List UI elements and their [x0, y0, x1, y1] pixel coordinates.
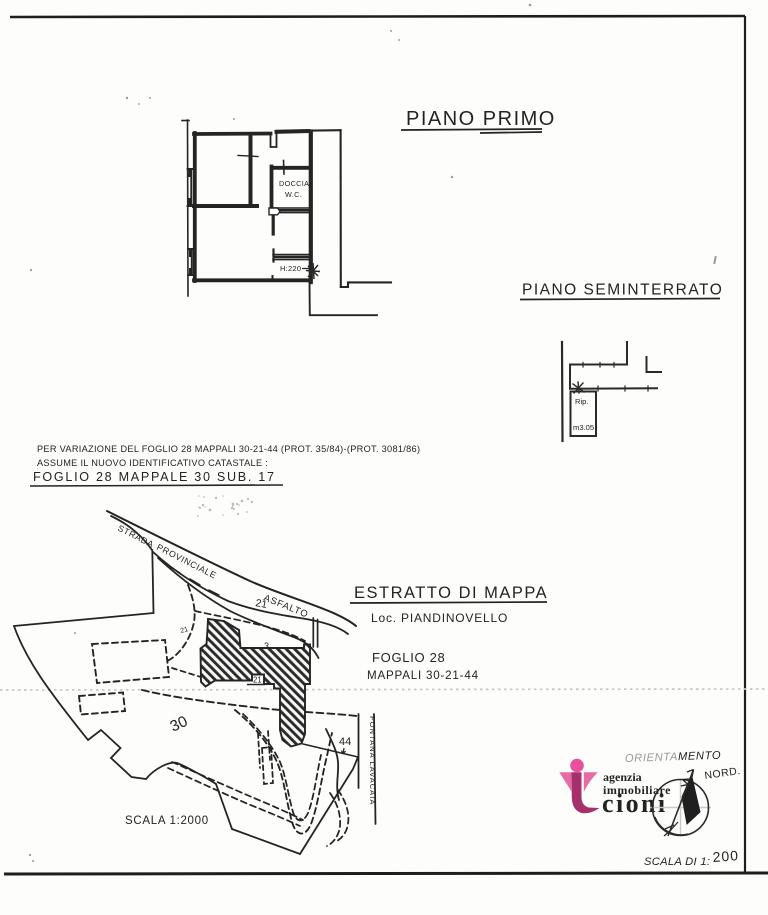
- svg-text:SCALA 1:2000: SCALA 1:2000: [125, 815, 209, 827]
- svg-text:ESTRATTO DI MAPPA: ESTRATTO DI MAPPA: [354, 584, 548, 602]
- svg-text:3: 3: [264, 641, 269, 651]
- svg-text:cioni: cioni: [602, 789, 667, 818]
- svg-text:Loc. PIANDINOVELLO: Loc. PIANDINOVELLO: [371, 611, 508, 625]
- svg-text:PIANO PRIMO: PIANO PRIMO: [406, 108, 556, 130]
- svg-text:44: 44: [339, 736, 351, 748]
- svg-text:ASSUME IL NUOVO IDENTIFICATIVO: ASSUME IL NUOVO IDENTIFICATIVO CATASTALE…: [37, 458, 268, 468]
- svg-text:FONTANA LAVACAIA: FONTANA LAVACAIA: [368, 716, 377, 805]
- svg-text:FOGLIO 28: FOGLIO 28: [372, 650, 446, 665]
- svg-text:21: 21: [253, 676, 262, 685]
- svg-text:H:220: H:220: [280, 264, 301, 273]
- svg-text:PER VARIAZIONE DEL FOGLIO 28 M: PER VARIAZIONE DEL FOGLIO 28 MAPPALI 30-…: [37, 444, 420, 454]
- svg-text:PIANO SEMINTERRATO: PIANO SEMINTERRATO: [522, 282, 723, 299]
- svg-text:21: 21: [254, 597, 268, 611]
- svg-text:FOGLIO 28 MAPPALE 30 SUB. 17: FOGLIO 28 MAPPALE 30 SUB. 17: [33, 470, 276, 484]
- svg-text:m3.05: m3.05: [573, 423, 594, 432]
- svg-text:W.C.: W.C.: [285, 190, 302, 199]
- svg-text:DOCCIA: DOCCIA: [279, 179, 309, 188]
- svg-text:agenzia: agenzia: [603, 770, 642, 784]
- svg-text:200: 200: [712, 847, 739, 865]
- svg-text:SCALA DI 1:: SCALA DI 1:: [644, 856, 710, 868]
- svg-text:MAPPALI 30-21-44: MAPPALI 30-21-44: [367, 669, 479, 682]
- svg-text:Rip.: Rip.: [575, 397, 589, 406]
